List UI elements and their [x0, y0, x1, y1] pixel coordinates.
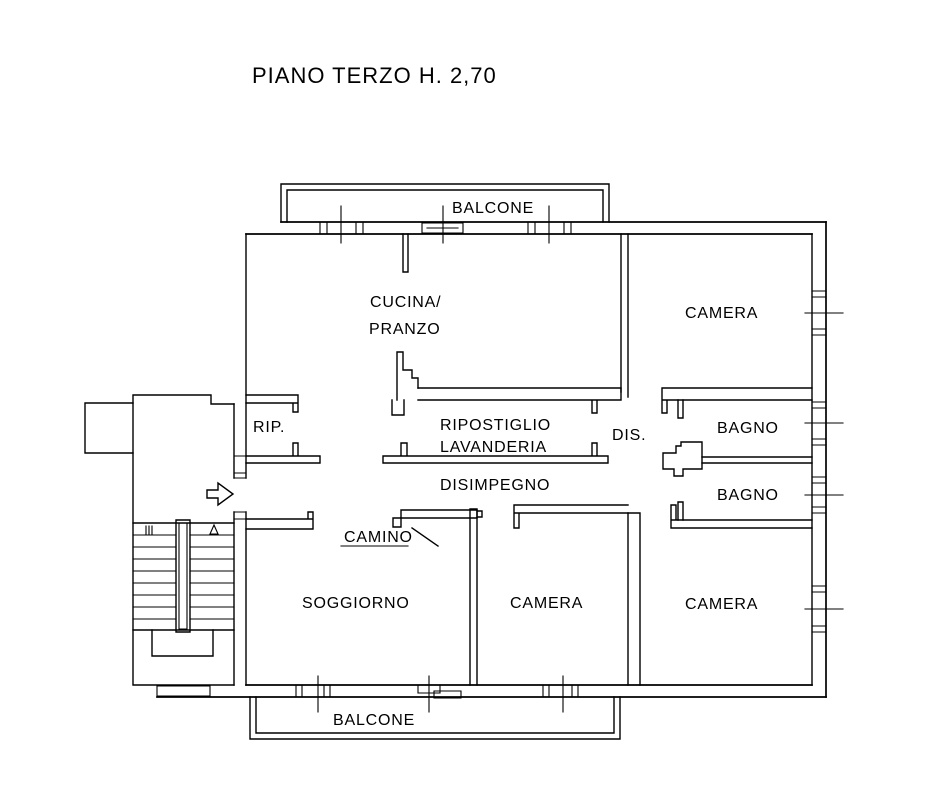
- wall-camera-se-north: [671, 505, 812, 528]
- balcony-top: [281, 184, 609, 222]
- wall-camino-bar: [401, 510, 477, 518]
- label-dis: DIS.: [612, 427, 646, 444]
- stairwell-bay: [85, 403, 133, 453]
- windows-right-wall: [805, 291, 843, 632]
- label-camera-ne: CAMERA: [685, 305, 758, 322]
- wall-rip-south: [246, 443, 320, 463]
- label-rip: RIP.: [253, 419, 285, 436]
- balcony-top-inner-rail: [287, 190, 603, 222]
- label-balcone-bottom: BALCONE: [333, 712, 415, 729]
- wall-camera-ne-south: [662, 388, 812, 413]
- window-center-ticks-right: [805, 313, 843, 609]
- label-camera-s: CAMERA: [510, 595, 583, 612]
- flue-pillar: [392, 352, 418, 415]
- stair-treads: [133, 535, 234, 619]
- wall-camera-s-se-divider: [628, 513, 640, 685]
- stair-landing-inner: [152, 630, 213, 656]
- label-ripostiglio-line2: LAVANDERIA: [440, 439, 547, 456]
- fireplace-diagonal: [412, 528, 438, 546]
- wall-camera-s-north: [514, 505, 628, 528]
- floor-plan-page: PIANO TERZO H. 2,70 BALCONE CUCINA/ PRAN…: [0, 0, 929, 792]
- wall-cucina-south: [418, 388, 621, 413]
- wall-bagno-divider: [702, 457, 812, 463]
- stairwell: [85, 395, 234, 696]
- labels: PIANO TERZO H. 2,70 BALCONE CUCINA/ PRAN…: [252, 63, 779, 729]
- interior-walls: [246, 234, 812, 685]
- plumbing-pier: [663, 442, 702, 476]
- entry-door-jambs: [234, 456, 246, 519]
- stair-flight-edges: [133, 523, 234, 630]
- window-jambs-right: [812, 291, 826, 632]
- wall-soggiorno-north: [246, 512, 313, 529]
- balcony-bottom: [250, 697, 620, 739]
- fireplace-box: [393, 518, 401, 527]
- stair-threshold: [157, 686, 210, 696]
- entrance-arrow-icon: [207, 483, 233, 505]
- stair-tick-marks: [146, 526, 152, 534]
- page-title: PIANO TERZO H. 2,70: [252, 63, 497, 88]
- window-center-ticks-bottom: [318, 676, 563, 712]
- label-cucina-line2: PRANZO: [369, 321, 440, 338]
- stair-stringer-inner: [179, 523, 187, 629]
- label-cucina-line1: CUCINA/: [370, 294, 441, 311]
- wall-cucina-camera-ne: [621, 234, 628, 397]
- label-soggiorno: SOGGIORNO: [302, 595, 410, 612]
- windows-bottom-wall: [296, 676, 578, 712]
- balcony-bottom-inner-rail: [256, 697, 614, 733]
- label-balcone-top: BALCONE: [452, 200, 534, 217]
- stair-direction-triangle: [210, 525, 218, 534]
- wall-stub-bagno2: [678, 502, 683, 520]
- balcony-door-threshold-bottom: [418, 685, 461, 698]
- label-ripostiglio-line1: RIPOSTIGLIO: [440, 417, 551, 434]
- wall-stub-cucina: [403, 234, 408, 272]
- stair-stringer-outer: [176, 520, 190, 632]
- floor-plan-drawing: PIANO TERZO H. 2,70 BALCONE CUCINA/ PRAN…: [0, 0, 929, 792]
- exterior-walls: [157, 222, 826, 697]
- label-camino: CAMINO: [344, 529, 413, 546]
- label-bagno-2: BAGNO: [717, 487, 779, 504]
- label-disimpegno: DISIMPEGNO: [440, 477, 550, 494]
- label-bagno-1: BAGNO: [717, 420, 779, 437]
- stairwell-outline: [133, 395, 234, 685]
- wall-soggiorno-camera-s-divider: [470, 509, 482, 685]
- wall-rip-north: [246, 395, 298, 412]
- wall-stub-bagno1: [678, 400, 683, 418]
- label-camera-se: CAMERA: [685, 596, 758, 613]
